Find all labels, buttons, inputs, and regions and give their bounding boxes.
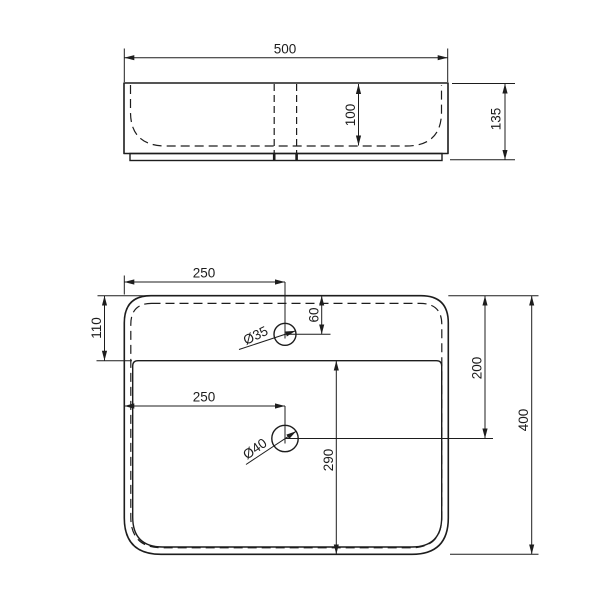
- dim-label-height: 135: [489, 108, 504, 131]
- dim-overall-depth: 400: [450, 296, 539, 555]
- washbasin-technical-drawing: 500 100 135 250: [0, 0, 600, 600]
- dim-label-bowl-front: 290: [321, 449, 336, 472]
- elevation-dimensions: 500 100 135: [124, 42, 515, 160]
- dim-overall-width: 500: [124, 42, 447, 83]
- dim-label-drain-from-back: 200: [470, 357, 485, 380]
- dim-ledge-from-back: 110: [89, 296, 150, 361]
- drain-hole-callout: Ø40: [240, 431, 296, 464]
- dim-label-ledge-from-back: 110: [89, 317, 104, 339]
- dim-label-width: 500: [274, 42, 297, 57]
- dim-overall-height: 135: [450, 84, 515, 160]
- dim-bowl-front: 290: [321, 361, 337, 555]
- bowl-outline: [133, 361, 442, 547]
- elevation-view: [124, 83, 448, 161]
- dim-faucet-from-back: 60: [307, 296, 322, 335]
- basin-base-plinth: [130, 154, 442, 161]
- dim-label-faucet-from-back: 60: [307, 307, 322, 322]
- dim-label-depth: 400: [516, 409, 531, 432]
- dim-faucet-from-left: 250: [124, 266, 285, 295]
- dim-label-faucet-from-left: 250: [193, 266, 216, 281]
- drawing-canvas: 500 100 135 250: [0, 0, 600, 600]
- plan-dimensions: 250 110 60 200 400 250 290: [89, 266, 539, 555]
- dim-label-bowl-depth: 100: [343, 104, 358, 127]
- dim-bowl-depth: 100: [343, 84, 359, 146]
- dim-label-drain-from-left: 250: [193, 390, 216, 405]
- basin-front-outline: [124, 83, 448, 154]
- hidden-bowl-profile: [131, 85, 442, 146]
- dim-drain-from-left: 250: [124, 390, 285, 407]
